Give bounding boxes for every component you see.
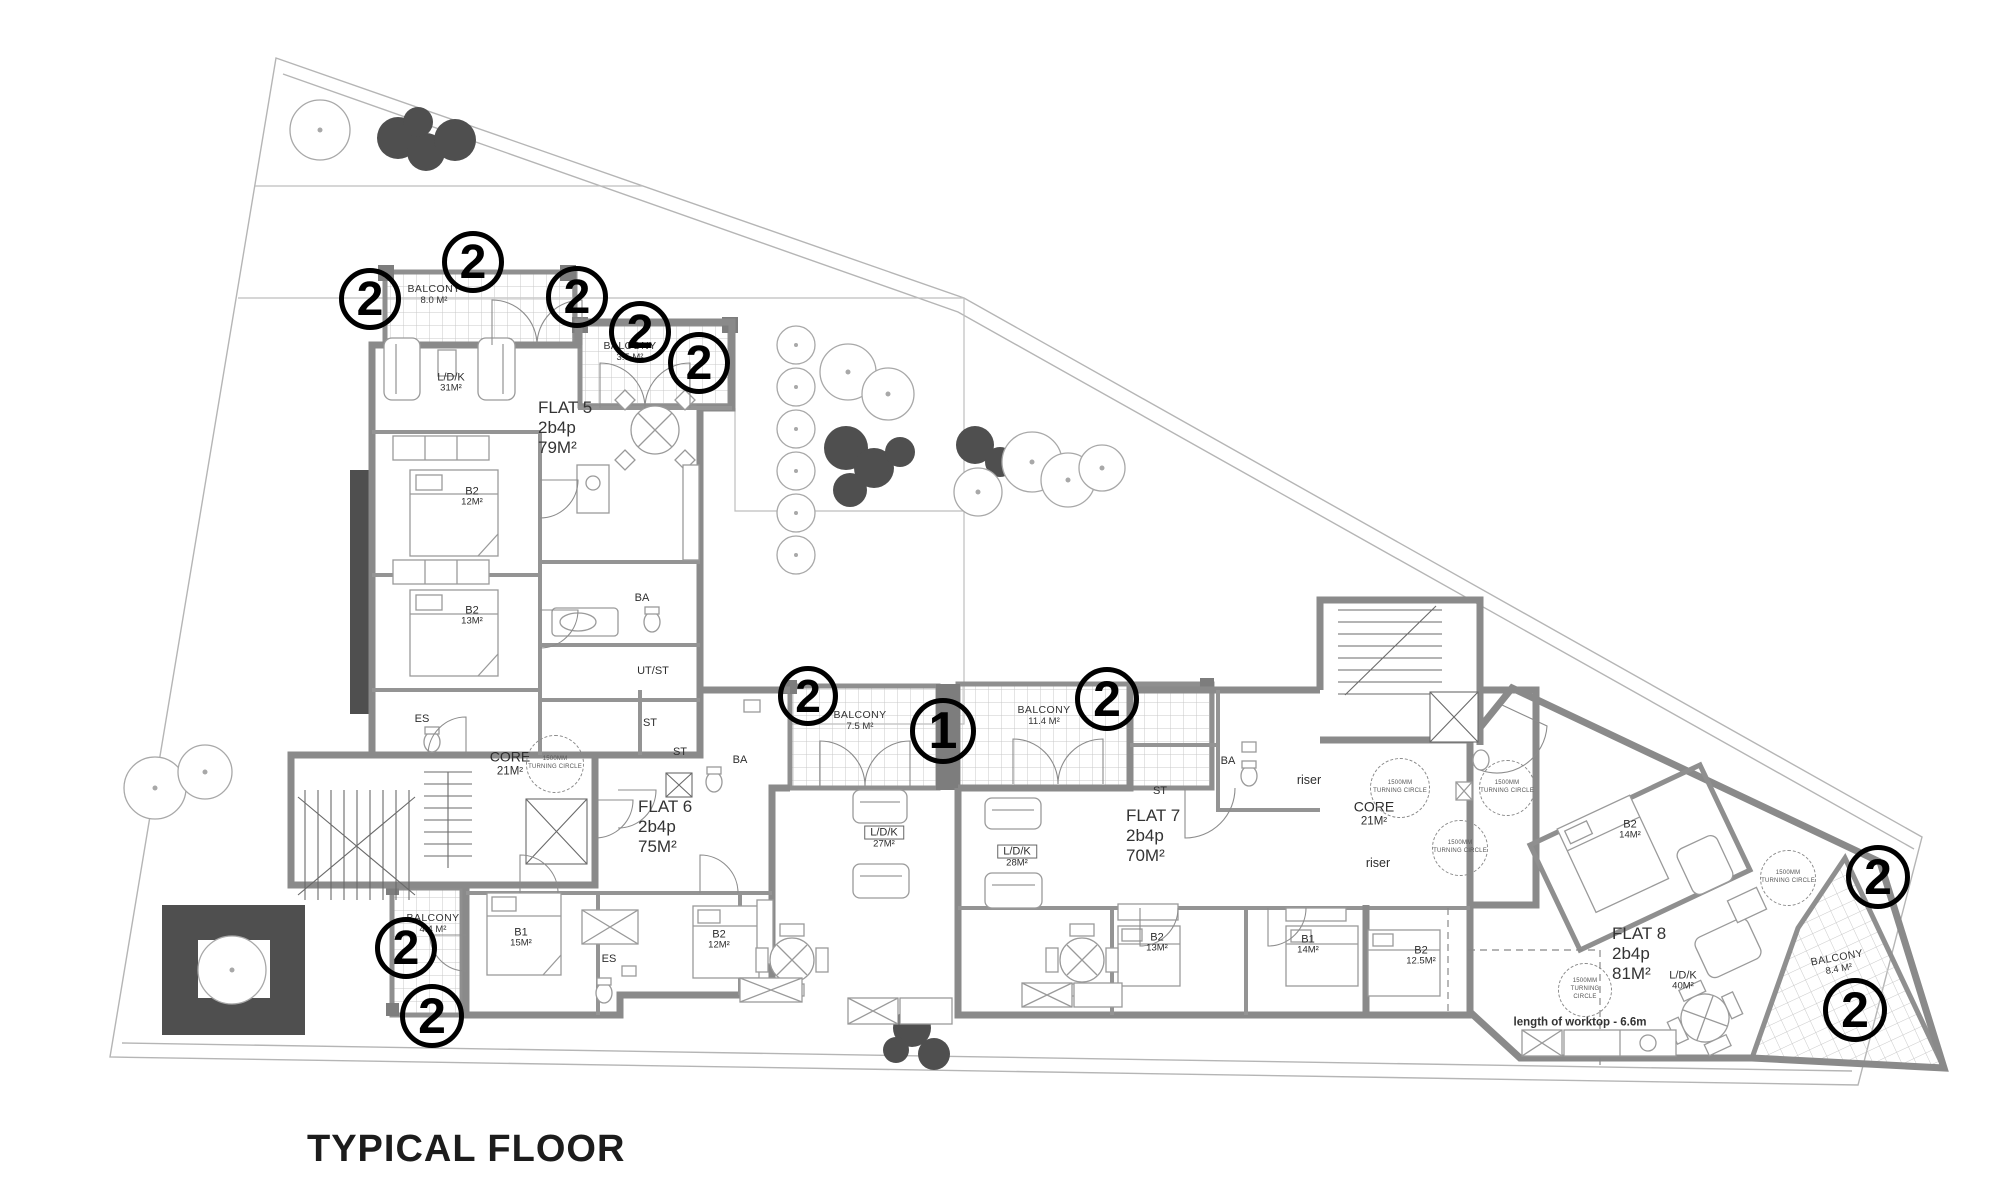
flat-label: FLAT 52b4p79M²: [538, 398, 592, 458]
core-label: CORE21M²: [490, 750, 530, 779]
unit-count-marker: 2: [778, 666, 838, 726]
turning-circle: 1500MMTURNING CIRCLE: [1432, 820, 1488, 876]
riser-label: riser: [1297, 773, 1321, 787]
unit-count-marker: 2: [1823, 978, 1887, 1042]
room-label: B114M²: [1297, 934, 1319, 957]
floor-plan-page: BALCONY8.0 M²BALCONY3.5 M²BALCONY7.5 M²B…: [0, 0, 2000, 1180]
turning-circle: 1500MMTURNING CIRCLE: [526, 735, 584, 793]
unit-count-marker: 2: [400, 984, 464, 1048]
room-label: L/D/K27M²: [864, 826, 904, 851]
unit-count-marker: 2: [546, 266, 608, 328]
unit-count-marker: 2: [1075, 667, 1139, 731]
room-label: BA: [733, 754, 748, 766]
balcony-label: BALCONY8.4 M²: [1810, 948, 1866, 979]
turning-circle: 1500MMTURNING CIRCLE: [1370, 758, 1430, 818]
room-label: B212M²: [461, 486, 483, 509]
room-label: B212M²: [708, 929, 730, 952]
turning-circle: 1500MMTURNING CIRCLE: [1479, 760, 1535, 816]
room-label: ES: [602, 953, 617, 965]
balcony-label: BALCONY7.5 M²: [834, 710, 887, 732]
room-label: BA: [1221, 755, 1236, 767]
room-label: ST: [673, 746, 687, 758]
unit-count-marker: 2: [609, 301, 671, 363]
label-overlay: BALCONY8.0 M²BALCONY3.5 M²BALCONY7.5 M²B…: [0, 0, 2000, 1180]
balcony-label: BALCONY8.0 M²: [408, 284, 461, 306]
unit-count-marker: 2: [442, 231, 504, 293]
room-label: B213M²: [461, 605, 483, 628]
room-label: B115M²: [510, 927, 532, 950]
riser-label: riser: [1366, 856, 1390, 870]
room-label: L/D/K28M²: [997, 845, 1037, 870]
turning-circle: 1500MMTURNING CIRCLE: [1558, 963, 1612, 1017]
room-label: B213M²: [1146, 932, 1168, 955]
flat-label: FLAT 82b4p81M²: [1612, 924, 1666, 984]
room-label: B214M²: [1619, 819, 1641, 842]
unit-count-marker: 2: [339, 268, 401, 330]
worktop-note: length of worktop - 6.6m: [1514, 1017, 1647, 1030]
flat-label: FLAT 72b4p70M²: [1126, 806, 1180, 866]
room-label: ES: [415, 713, 430, 725]
room-label: UT/ST: [637, 665, 669, 677]
unit-count-marker: 1: [910, 698, 976, 764]
drawing-title: TYPICAL FLOOR: [307, 1128, 625, 1171]
room-label: ST: [1153, 785, 1167, 797]
room-label: ST: [643, 717, 657, 729]
room-label: BA: [635, 592, 650, 604]
flat-label: FLAT 62b4p75M²: [638, 797, 692, 857]
turning-circle: 1500MMTURNING CIRCLE: [1760, 850, 1816, 906]
unit-count-marker: 2: [375, 917, 437, 979]
unit-count-marker: 2: [668, 332, 730, 394]
unit-count-marker: 2: [1846, 845, 1910, 909]
room-label: L/D/K31M²: [437, 372, 465, 395]
room-label: L/D/K40M²: [1669, 970, 1697, 993]
room-label: B212.5M²: [1406, 945, 1436, 968]
balcony-label: BALCONY11.4 M²: [1018, 705, 1071, 727]
